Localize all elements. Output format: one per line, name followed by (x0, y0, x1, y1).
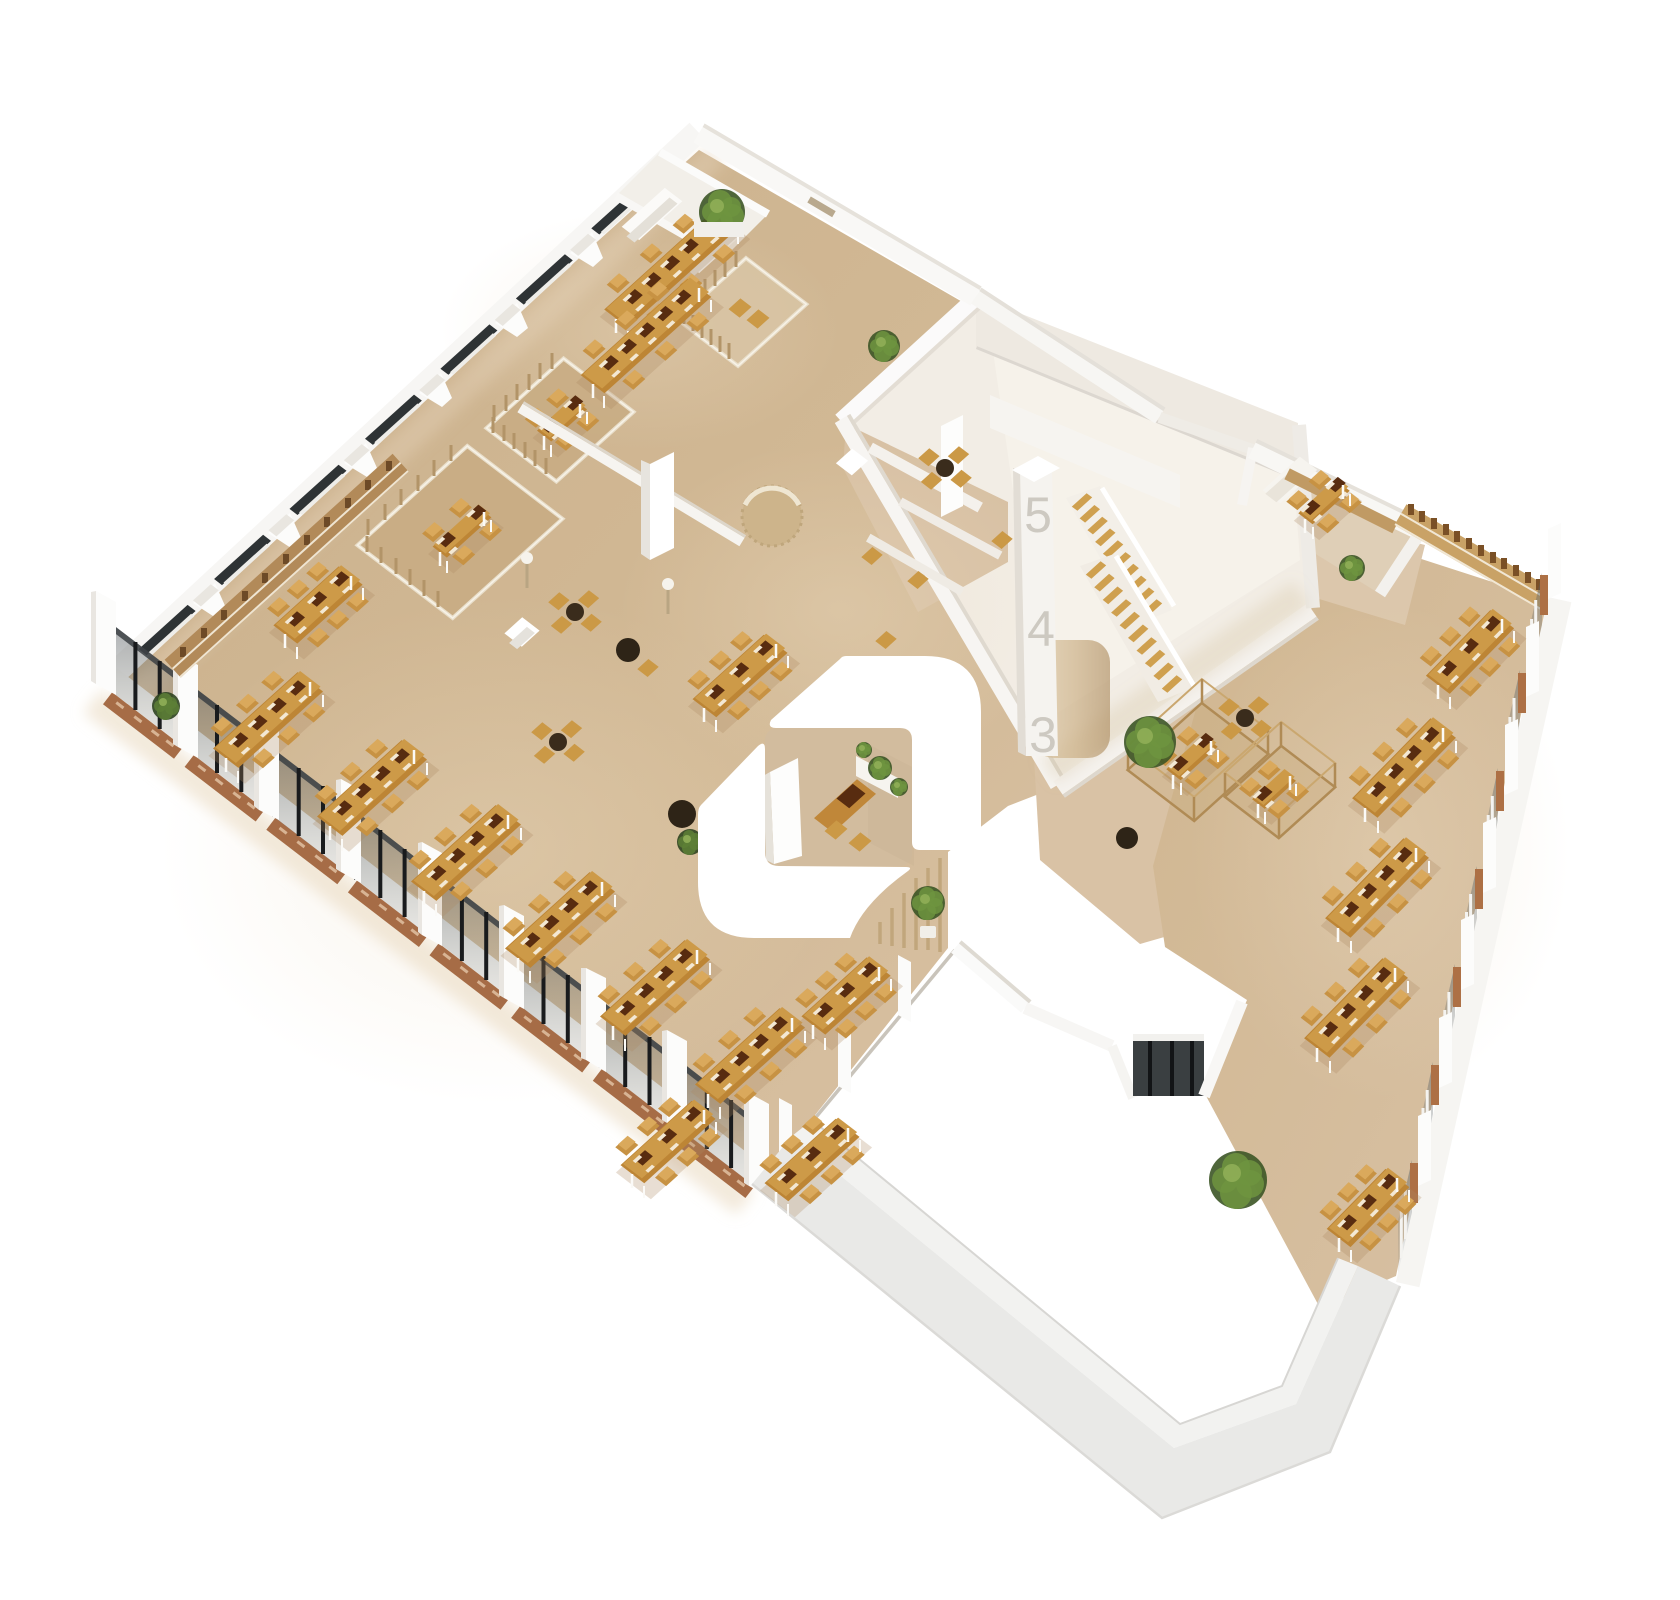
svg-text:5: 5 (1024, 487, 1052, 543)
svg-text:3: 3 (1029, 707, 1057, 763)
svg-text:4: 4 (1027, 601, 1055, 657)
